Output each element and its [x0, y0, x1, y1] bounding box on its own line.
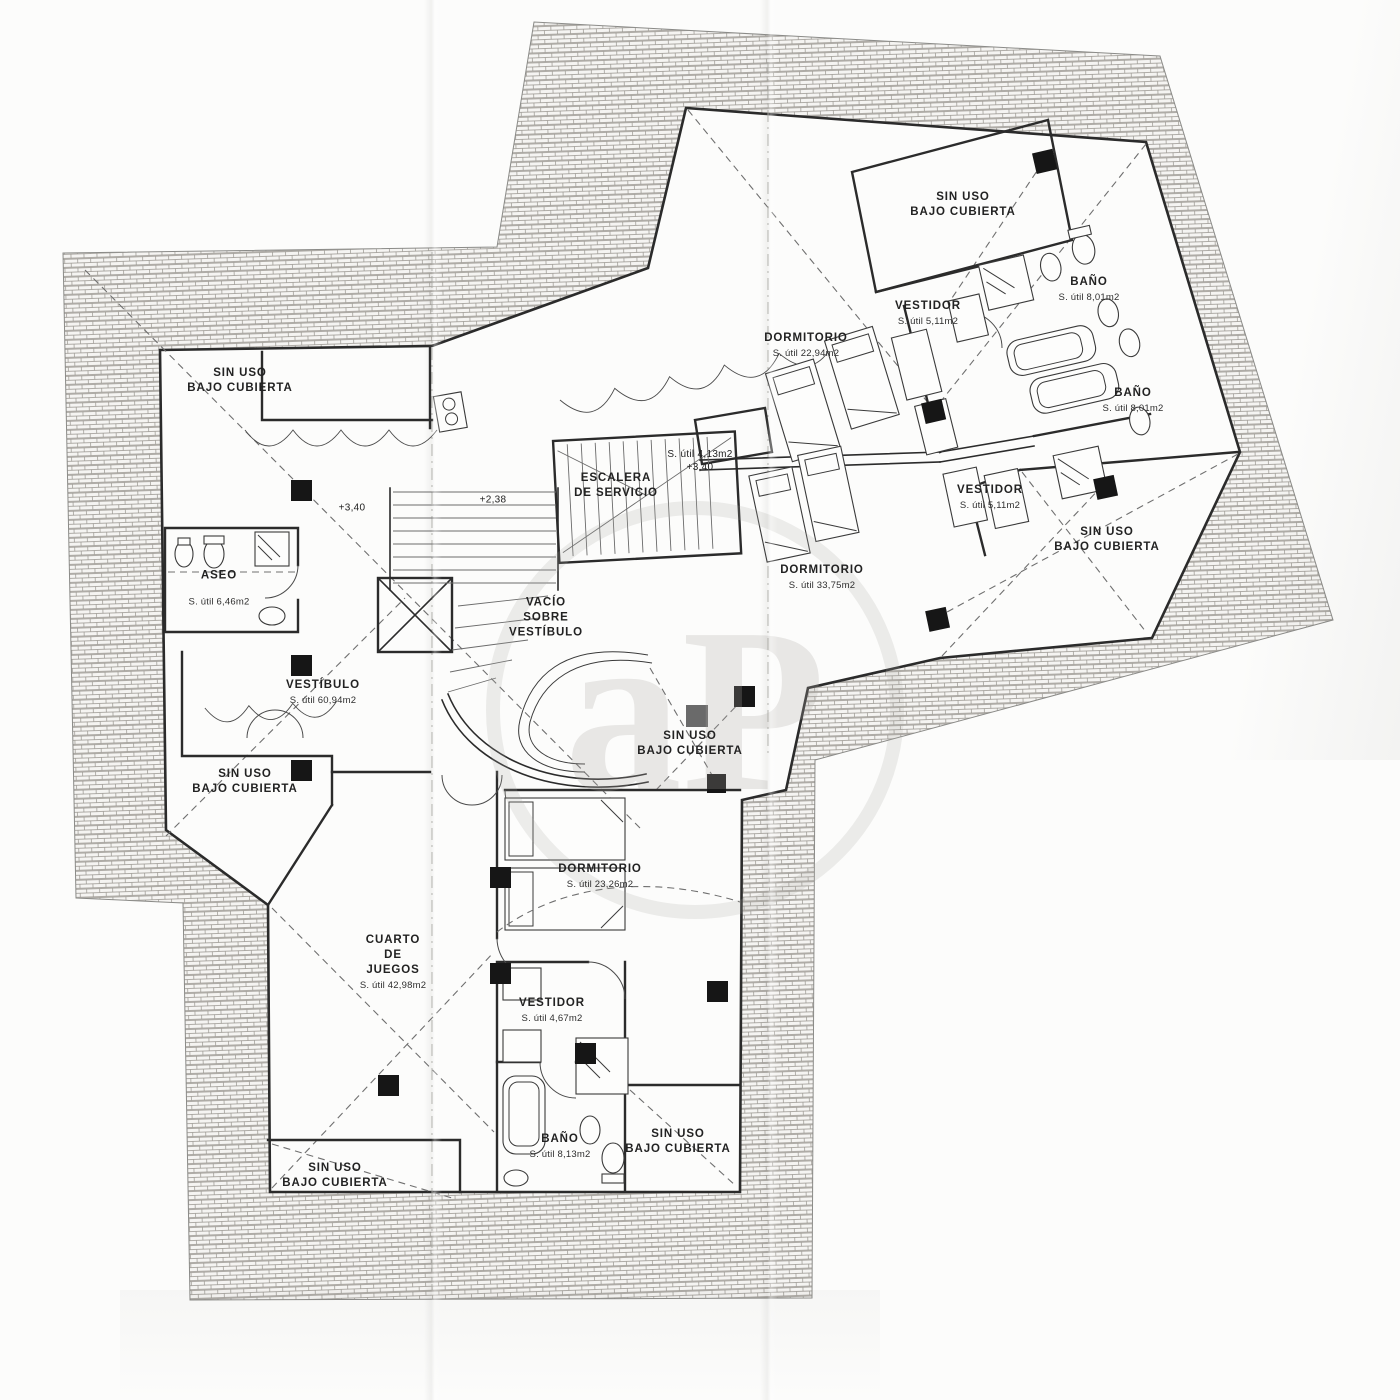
- hatched-roof-areas: [63, 22, 1333, 1300]
- room-label-dormitorio-1: DORMITORIOS. útil 22,94m2: [764, 331, 848, 359]
- label-util-413: S. útil 4,13m2+3,40: [667, 448, 732, 474]
- room-label-sin-uso-bottom-right: SIN USOBAJO CUBIERTA: [625, 1127, 730, 1157]
- room-label-sin-uso-left: SIN USOBAJO CUBIERTA: [192, 767, 297, 797]
- room-label-sin-uso-wing-right: SIN USOBAJO CUBIERTA: [1054, 525, 1159, 555]
- room-label-vestidor-2: VESTIDORS. útil 5,11m2: [957, 483, 1023, 511]
- room-label-vestibulo: VESTÍBULOS. útil 60,94m2: [286, 678, 360, 706]
- floor-plan-drawing: [0, 0, 1400, 1400]
- elevator-shaft: [378, 578, 452, 652]
- room-label-bano-2: BAÑOS. útil 8,01m2: [1103, 386, 1164, 414]
- room-label-vacio-sobre-vestibulo: VACÍOSOBREVESTÍBULO: [509, 596, 583, 641]
- label-nivel-238: +2,38: [480, 494, 507, 507]
- room-label-sin-uso-top-left: SIN USOBAJO CUBIERTA: [187, 366, 292, 396]
- room-label-sin-uso-wing-top: SIN USOBAJO CUBIERTA: [910, 190, 1015, 220]
- room-label-vestidor-1: VESTIDORS. útil 5,11m2: [895, 299, 961, 327]
- room-label-aseo: ASEOS. útil 6,46m2: [189, 569, 250, 608]
- room-label-sin-uso-center: SIN USOBAJO CUBIERTA: [637, 729, 742, 759]
- beds-dormitorio-2: [747, 446, 861, 562]
- room-label-dormitorio-3: DORMITORIOS. útil 23,26m2: [558, 862, 642, 890]
- room-label-bano-1: BAÑOS. útil 8,01m2: [1059, 275, 1120, 303]
- room-label-escalera-servicio: ESCALERADE SERVICIO: [574, 471, 658, 501]
- room-label-bano-3: BAÑOS. útil 8,13m2: [530, 1132, 591, 1160]
- room-label-vestidor-3: VESTIDORS. útil 4,67m2: [519, 996, 585, 1024]
- room-label-dormitorio-2: DORMITORIOS. útil 33,75m2: [780, 563, 864, 591]
- room-label-sin-uso-bottom-left: SIN USOBAJO CUBIERTA: [282, 1161, 387, 1191]
- kitchen-sink-unit: [433, 392, 467, 432]
- label-nivel-340: +3,40: [339, 502, 366, 515]
- room-label-cuarto-de-juegos: CUARTODEJUEGOSS. útil 42,98m2: [360, 933, 426, 991]
- floor-plan-page: aP SIN USOBAJO CUBIERTA BAÑOS. útil 8,01…: [0, 0, 1400, 1400]
